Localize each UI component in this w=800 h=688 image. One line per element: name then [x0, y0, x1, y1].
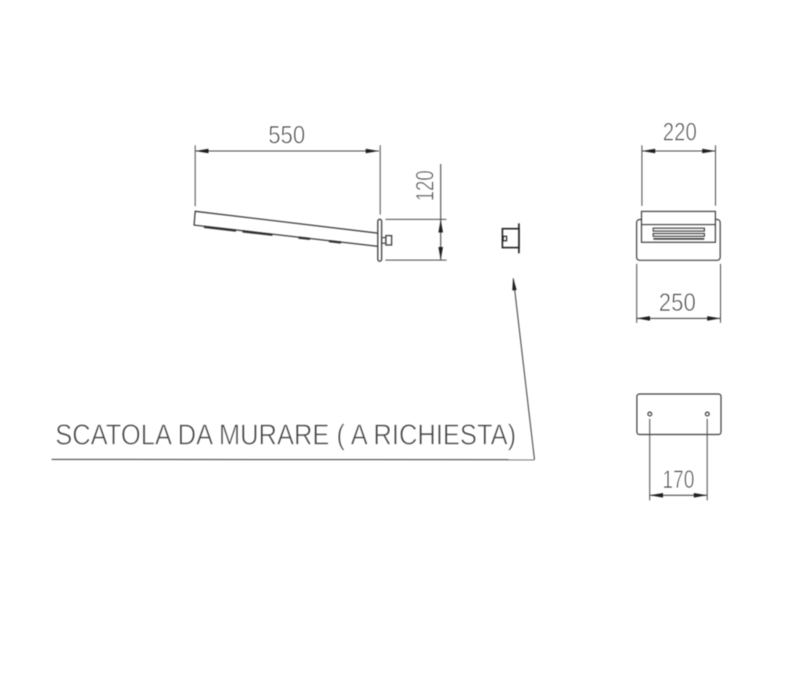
- svg-text:220: 220: [663, 119, 697, 147]
- svg-text:550: 550: [268, 121, 305, 149]
- svg-text:170: 170: [662, 466, 694, 494]
- svg-text:SCATOLA DA MURARE ( A RICHIEST: SCATOLA DA MURARE ( A RICHIESTA): [55, 419, 516, 451]
- svg-text:250: 250: [659, 289, 696, 317]
- svg-text:120: 120: [412, 170, 440, 201]
